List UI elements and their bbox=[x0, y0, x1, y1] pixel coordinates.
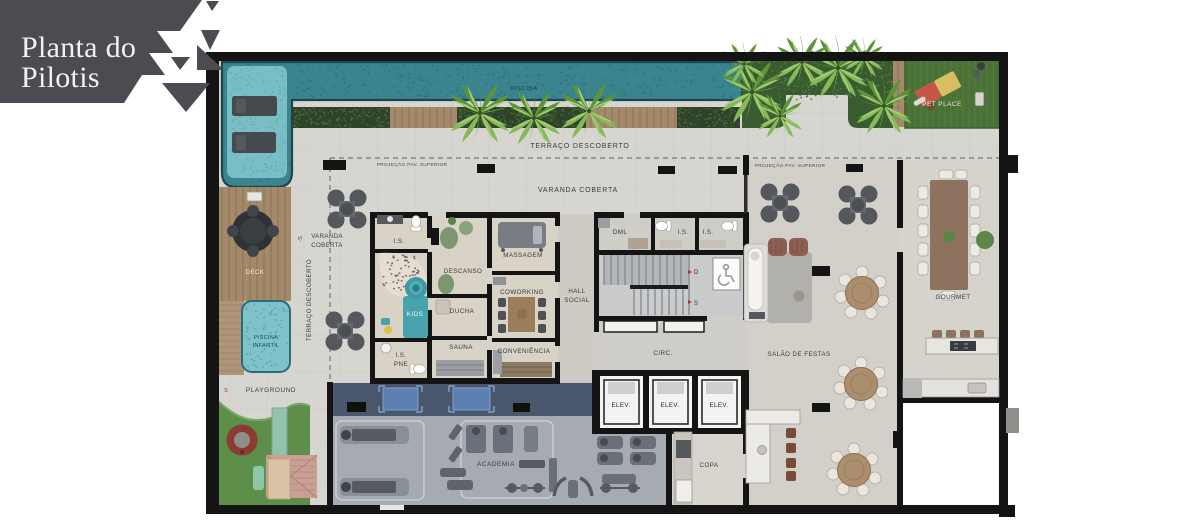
svg-text:Pilotis: Pilotis bbox=[21, 61, 100, 94]
svg-text:I.S.: I.S. bbox=[395, 352, 406, 359]
svg-text:DML: DML bbox=[613, 229, 628, 236]
svg-text:ELEV.: ELEV. bbox=[612, 402, 631, 409]
svg-text:COBERTA: COBERTA bbox=[311, 242, 343, 249]
svg-text:PROJEÇÃO PAV. SUPERIOR: PROJEÇÃO PAV. SUPERIOR bbox=[755, 162, 826, 169]
svg-text:CIRC.: CIRC. bbox=[653, 350, 672, 357]
svg-text:S: S bbox=[694, 301, 698, 307]
svg-text:ACADEMIA: ACADEMIA bbox=[477, 461, 515, 468]
svg-text:VARANDA COBERTA: VARANDA COBERTA bbox=[538, 187, 618, 194]
svg-text:I.S.: I.S. bbox=[393, 238, 404, 245]
svg-text:COPA: COPA bbox=[700, 462, 719, 469]
svg-text:TERRAÇO DESCOBERTO: TERRAÇO DESCOBERTO bbox=[530, 143, 629, 150]
svg-text:PISCINA: PISCINA bbox=[254, 335, 278, 341]
svg-text:CONVENIÊNCIA: CONVENIÊNCIA bbox=[498, 346, 551, 355]
svg-text:DESCANSO: DESCANSO bbox=[444, 268, 483, 275]
svg-text:-S: -S bbox=[298, 236, 304, 242]
svg-text:PET PLACE: PET PLACE bbox=[922, 101, 962, 108]
svg-text:DECK: DECK bbox=[246, 270, 265, 276]
svg-text:ELEV.: ELEV. bbox=[661, 402, 680, 409]
svg-text:SOCIAL: SOCIAL bbox=[564, 297, 590, 304]
svg-text:ELEV.: ELEV. bbox=[710, 402, 729, 409]
svg-text:COWORKING: COWORKING bbox=[500, 289, 544, 296]
svg-text:I.S.: I.S. bbox=[702, 229, 713, 236]
svg-text:PLAYGROUND: PLAYGROUND bbox=[246, 387, 296, 394]
svg-text:DUCHA: DUCHA bbox=[450, 308, 475, 315]
svg-text:INFANTIL: INFANTIL bbox=[253, 343, 280, 349]
svg-text:Planta do: Planta do bbox=[21, 31, 136, 64]
svg-text:I.S.: I.S. bbox=[677, 229, 688, 236]
svg-text:PISCINA: PISCINA bbox=[510, 86, 537, 92]
svg-text:PNE: PNE bbox=[394, 361, 408, 368]
svg-text:PROJEÇÃO PAV. SUPERIOR: PROJEÇÃO PAV. SUPERIOR bbox=[377, 161, 448, 168]
svg-text:S: S bbox=[224, 388, 228, 394]
svg-text:SAUNA: SAUNA bbox=[449, 344, 473, 351]
svg-text:HALL: HALL bbox=[568, 288, 585, 295]
svg-text:TERRAÇO DESCOBERTO: TERRAÇO DESCOBERTO bbox=[306, 259, 313, 341]
svg-text:KIDS: KIDS bbox=[407, 311, 424, 318]
svg-text:VARANDA: VARANDA bbox=[311, 233, 343, 240]
svg-text:SALÃO DE FESTAS: SALÃO DE FESTAS bbox=[767, 349, 830, 358]
svg-text:D: D bbox=[694, 270, 699, 276]
svg-text:GOURMET: GOURMET bbox=[936, 294, 971, 301]
svg-text:MASSAGEM: MASSAGEM bbox=[503, 252, 543, 259]
